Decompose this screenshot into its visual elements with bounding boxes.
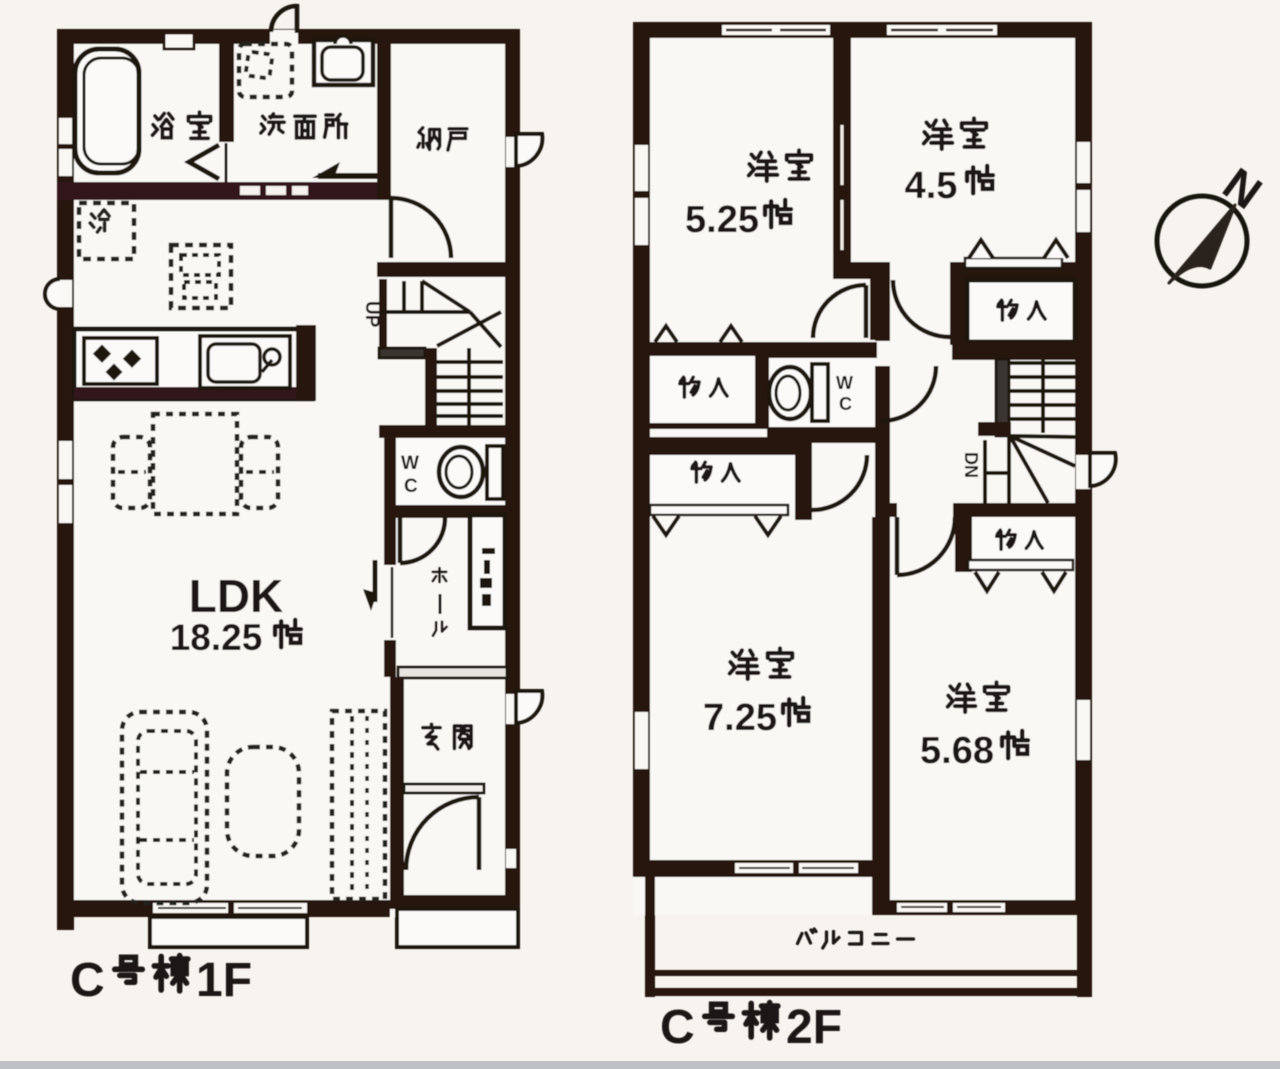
svg-text:5.25: 5.25 bbox=[685, 199, 759, 241]
svg-text:7.25: 7.25 bbox=[703, 697, 777, 739]
svg-text:C: C bbox=[839, 394, 852, 414]
svg-text:18.25: 18.25 bbox=[170, 617, 263, 658]
svg-text:C: C bbox=[70, 954, 105, 1007]
svg-text:C: C bbox=[660, 1001, 695, 1054]
svg-text:W: W bbox=[401, 453, 419, 474]
svg-text:W: W bbox=[836, 373, 853, 393]
svg-text:LDK: LDK bbox=[189, 570, 284, 622]
svg-text:4.5: 4.5 bbox=[905, 165, 958, 207]
svg-text:C: C bbox=[404, 476, 418, 497]
svg-text:DN: DN bbox=[961, 452, 981, 478]
svg-text:2F: 2F bbox=[786, 1001, 842, 1054]
svg-text:1F: 1F bbox=[196, 954, 252, 1007]
svg-text:5.68: 5.68 bbox=[920, 730, 994, 772]
svg-text:UP: UP bbox=[361, 301, 382, 328]
